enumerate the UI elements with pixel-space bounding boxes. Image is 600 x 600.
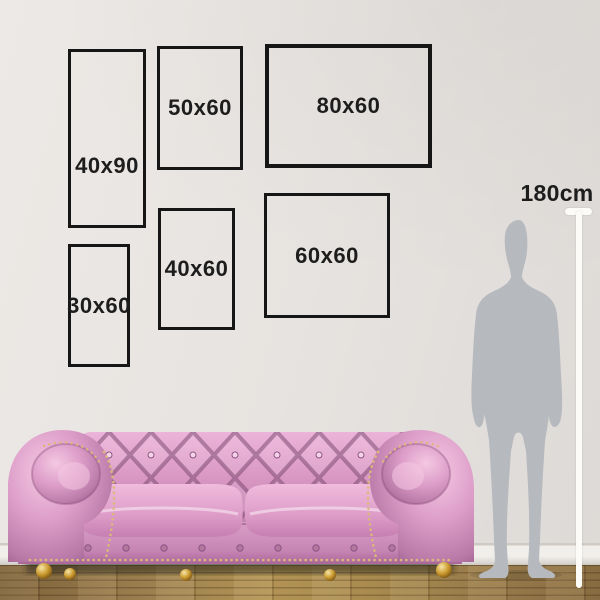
frame-50x60: 50x60	[157, 46, 243, 170]
frame-40x90: 40x90	[68, 49, 146, 228]
frame-60x60: 60x60	[264, 193, 390, 318]
frame-size-label: 30x60	[67, 293, 131, 319]
person-silhouette-icon	[466, 219, 566, 581]
height-label: 180cm	[516, 180, 598, 207]
frame-30x60: 30x60	[68, 244, 130, 367]
frame-size-label: 50x60	[168, 95, 232, 121]
frame-80x60: 80x60	[265, 44, 432, 168]
frame-size-label: 40x90	[71, 153, 143, 179]
frame-size-label: 80x60	[317, 93, 381, 119]
ruler-vertical-line-icon	[576, 211, 582, 588]
frame-size-label: 60x60	[295, 243, 359, 269]
frame-40x60: 40x60	[158, 208, 235, 330]
frame-size-label: 40x60	[165, 256, 229, 282]
sofa-illustration	[0, 424, 480, 584]
wall-art-size-guide: 40x90 50x60 80x60 30x60 40x60 60x60 180c…	[0, 0, 600, 600]
